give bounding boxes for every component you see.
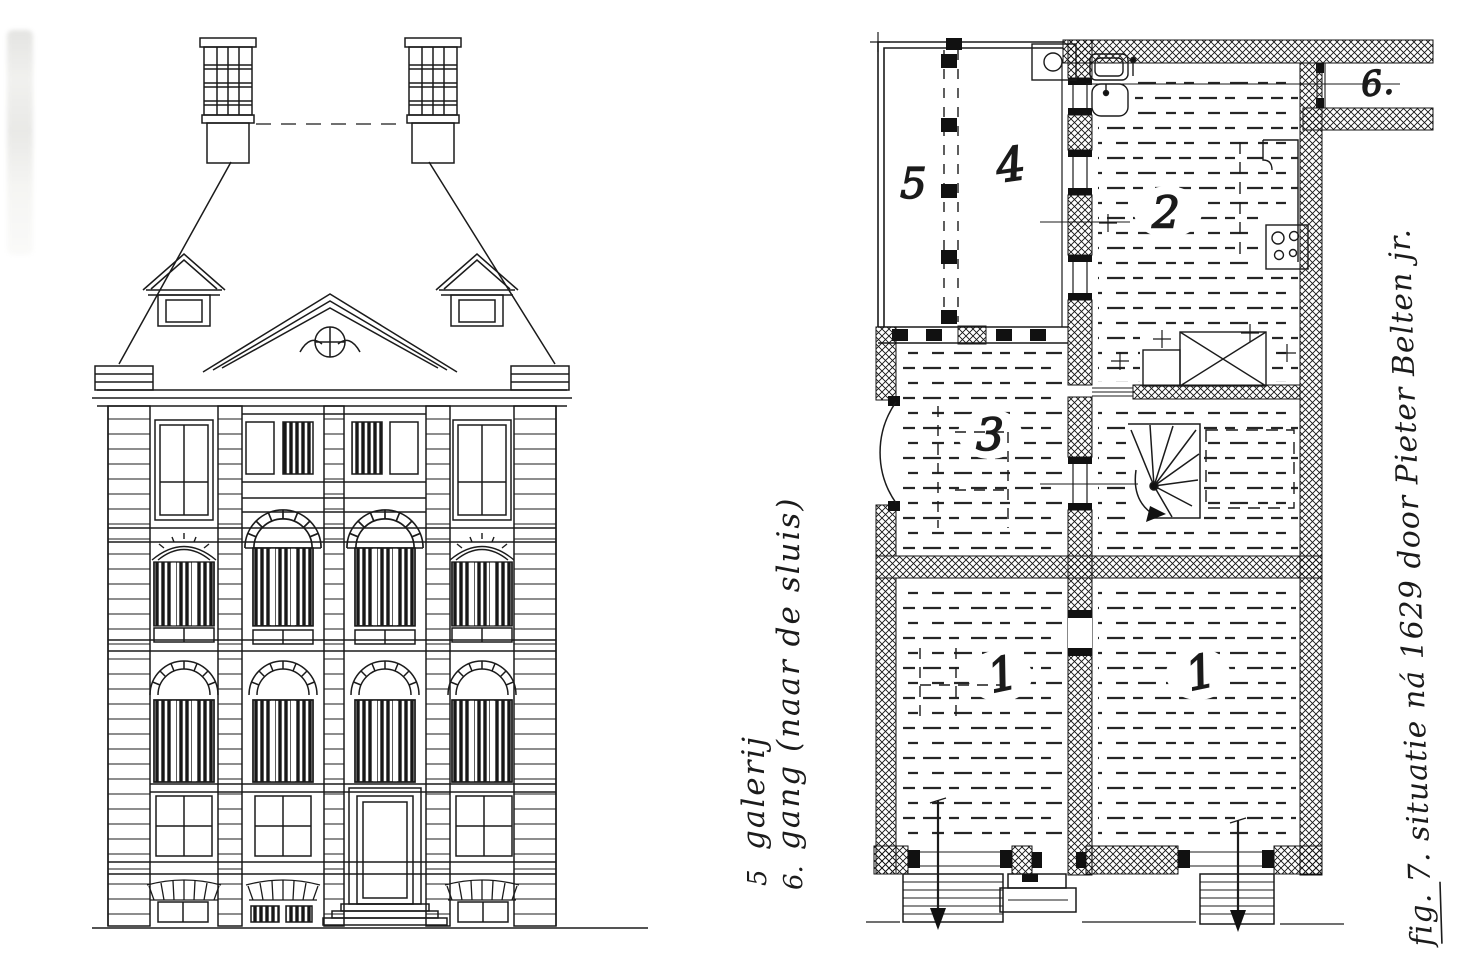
legend-text-gang: gang (naar de sluis) — [771, 497, 807, 850]
door-step — [332, 911, 438, 918]
architectural-figure: 5 4 2 3 1 1 6. 5 galerij 6. gang (naar d… — [0, 0, 1481, 954]
legend-number-5: 5 — [743, 869, 773, 886]
chimney-left — [200, 38, 256, 163]
caption-text: fig. 7. situatie ná 1629 door Pieter Bel… — [1382, 228, 1440, 949]
floorboards — [902, 46, 1312, 842]
plan-legend: 5 galerij 6. gang (naar de sluis) — [736, 497, 809, 890]
cornice — [92, 366, 572, 406]
pediment — [203, 294, 457, 372]
floor-plan: 5 4 2 3 1 1 6. — [866, 32, 1433, 932]
corridor-label-6: 6. — [1359, 62, 1395, 105]
gallery-sill-wall — [878, 326, 1068, 344]
caption-underline — [1440, 882, 1442, 944]
room-label-3: 3 — [976, 410, 1004, 461]
wall-niche — [880, 402, 896, 503]
dormer-left — [143, 254, 225, 326]
dormer-right — [436, 254, 518, 326]
door-step — [341, 904, 429, 911]
room-label-2: 2 — [1151, 188, 1180, 239]
room-label-4: 4 — [991, 136, 1029, 194]
scanned-figure-page: 5 4 2 3 1 1 6. 5 galerij 6. gang (naar d… — [0, 0, 1481, 954]
scan-smudge — [7, 30, 33, 255]
figure-caption: fig. 7. situatie ná 1629 door Pieter Bel… — [1382, 228, 1442, 949]
legend-number-6: 6. — [779, 865, 809, 890]
chimney-right — [405, 38, 461, 163]
legend-text-galerij: galerij — [736, 735, 772, 850]
gallery-walls — [870, 32, 1063, 327]
facade-body — [108, 406, 556, 926]
room-label-5: 5 — [900, 159, 927, 208]
facade-elevation — [92, 38, 648, 928]
